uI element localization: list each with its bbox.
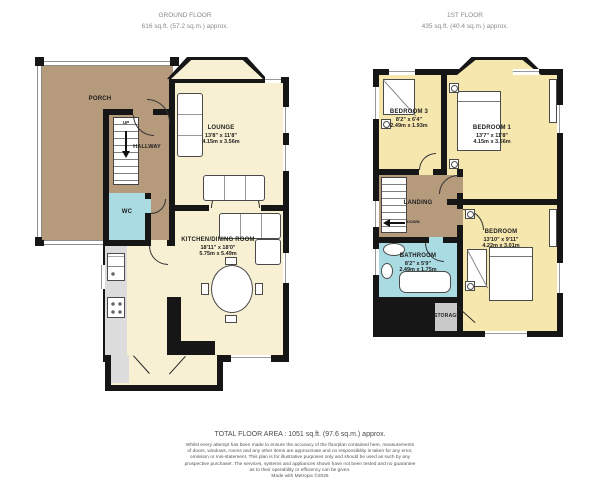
stairs-up-label: UP xyxy=(115,120,137,125)
wc-room xyxy=(109,193,145,240)
porch-corner-post xyxy=(170,57,179,66)
total-floor-area: TOTAL FLOOR AREA : 1051 sq.ft. (97.6 sq.… xyxy=(0,431,600,438)
radiator-icon xyxy=(449,83,459,93)
porch-room xyxy=(42,66,105,240)
disclaimer: Whilst every attempt has been made to en… xyxy=(0,443,600,480)
kitchen-window xyxy=(283,253,289,283)
landing-label: LANDING xyxy=(379,200,457,208)
bed xyxy=(489,247,533,301)
kitchen-counter xyxy=(111,355,129,383)
corner-sofa xyxy=(219,213,281,239)
kitchen-hob xyxy=(107,297,125,318)
bedroom3-front-window xyxy=(389,69,415,75)
bedroom1-side-window xyxy=(557,105,563,133)
first-floor-area: 435 sq.ft. (40.4 sq.m.) approx. xyxy=(375,21,555,32)
kitchen-internal-wall xyxy=(167,341,215,355)
sofa xyxy=(203,175,265,201)
bed-pillow-line xyxy=(490,256,532,257)
lounge-front-window xyxy=(265,77,281,83)
bathroom-label: BATHROOM 8'2" x 5'9" 2.49m x 1.75m xyxy=(379,253,457,274)
bedroom3-label: BEDROOM 3 8'2" x 6'4" 2.49m x 1.93m xyxy=(373,109,445,130)
ground-floor-plan: UP PORCH HALLWAY WC LOUNGE 13'8" x 11'8"… xyxy=(35,57,293,397)
bed-pillow-line xyxy=(458,101,500,102)
wardrobe xyxy=(549,79,557,123)
dining-chair xyxy=(225,315,237,323)
bathtub xyxy=(399,271,451,293)
dining-table xyxy=(211,265,253,313)
first-floor-header: 1ST FLOOR 435 sq.ft. (40.4 sq.m.) approx… xyxy=(375,10,555,32)
lounge-label: LOUNGE 13'8" x 11'8" 4.15m x 3.56m xyxy=(175,125,267,146)
bedroom1-label: BEDROOM 1 13'7" x 11'8" 4.15m x 3.56m xyxy=(437,125,547,146)
bedroom2-label: BEDROOM 13'10" x 9'11" 4.22m x 3.01m xyxy=(449,229,553,250)
storage-label: STORAGE xyxy=(421,313,473,319)
lounge-window xyxy=(283,107,289,133)
bedroom2-side-window xyxy=(557,263,563,293)
bedroom2-rear-window xyxy=(485,331,527,337)
porch-window-wall-bottom xyxy=(37,240,107,245)
kitchen-label: KITCHEN/DINING ROOM 18'11" x 18'0" 5.75m… xyxy=(153,237,283,258)
up-arrow-head xyxy=(122,151,130,158)
hallway-label: HALLWAY xyxy=(123,144,171,151)
bedroom1-bedroom2-wall xyxy=(447,199,557,205)
ground-floor-area: 616 sq.ft. (57.2 sq.m.) approx. xyxy=(95,21,275,32)
lounge-window xyxy=(283,145,289,171)
dining-chair xyxy=(201,283,209,295)
stairs-down-label: DOWN xyxy=(407,219,420,224)
kitchen-rear-window xyxy=(231,355,271,362)
porch-label: PORCH xyxy=(60,96,140,104)
bedroom1-front-window xyxy=(513,69,539,75)
kitchen-sink xyxy=(107,253,125,281)
first-floor-title: 1ST FLOOR xyxy=(375,10,555,21)
dining-chair xyxy=(255,283,263,295)
metropix-credit: Made with Metropix ©2026 xyxy=(0,474,600,480)
first-floor-plan: DOWN BEDROOM 3 8'2" x 6'4" 2.49m x 1.93m… xyxy=(365,57,570,345)
radiator-icon xyxy=(465,209,475,219)
down-arrow-head xyxy=(383,219,390,227)
wc-label: WC xyxy=(109,209,145,217)
ground-floor-title: GROUND FLOOR xyxy=(95,10,275,21)
radiator-icon xyxy=(449,159,459,169)
porch-corner-post xyxy=(35,57,44,66)
landing-bathroom-wall xyxy=(379,237,457,243)
down-arrow xyxy=(389,222,405,224)
ground-floor-header: GROUND FLOOR 616 sq.ft. (57.2 sq.m.) app… xyxy=(95,10,275,32)
radiator-icon xyxy=(465,281,475,291)
